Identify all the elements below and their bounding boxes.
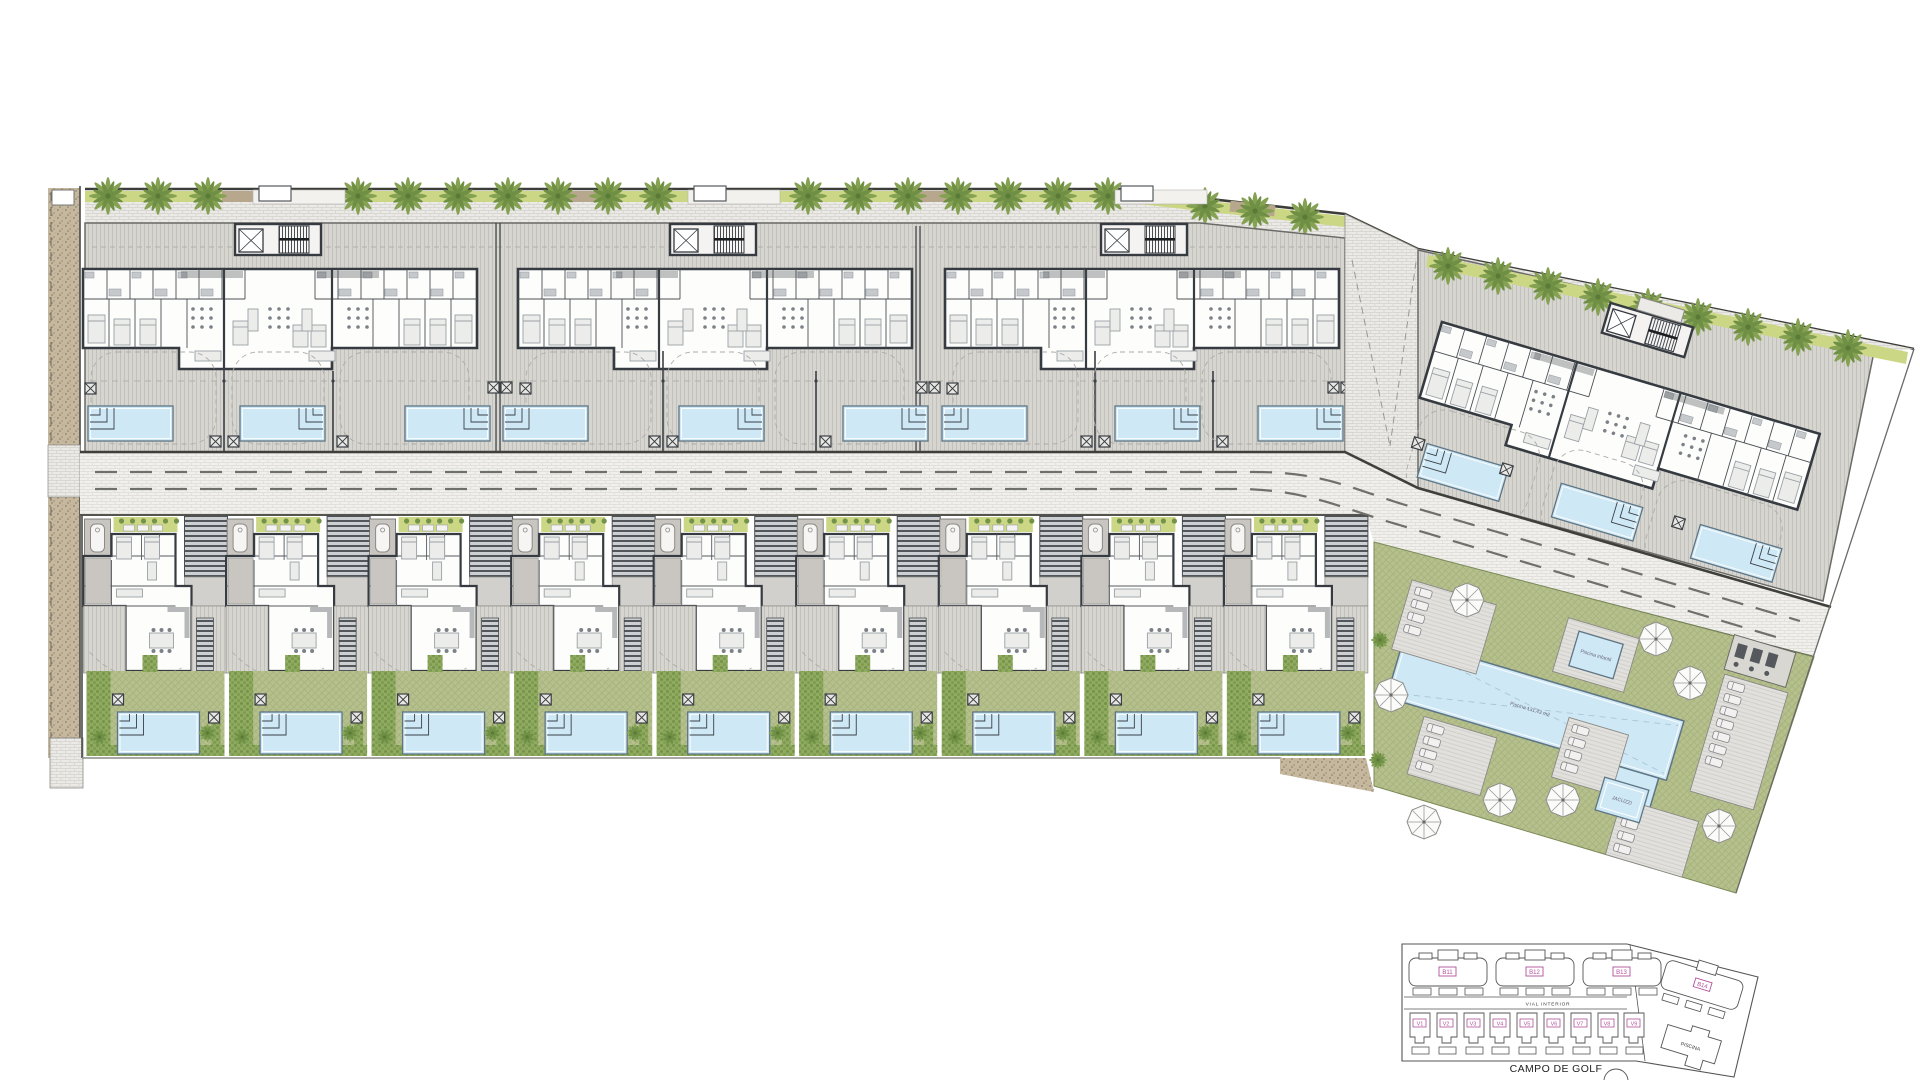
svg-text:V8: V8 [1604, 1022, 1611, 1028]
svg-text:V1: V1 [1417, 1022, 1424, 1028]
svg-text:V3: V3 [1470, 1022, 1477, 1028]
svg-text:B13: B13 [1616, 970, 1627, 976]
svg-text:V9: V9 [1631, 1022, 1638, 1028]
svg-text:VIAL INTERIOR: VIAL INTERIOR [1526, 1002, 1571, 1008]
svg-text:V7: V7 [1577, 1022, 1584, 1028]
svg-text:V5: V5 [1524, 1022, 1531, 1028]
svg-text:CAMPO DE GOLF: CAMPO DE GOLF [1510, 1063, 1603, 1075]
svg-text:V2: V2 [1443, 1022, 1450, 1028]
svg-text:B12: B12 [1529, 970, 1540, 976]
svg-text:B11: B11 [1442, 970, 1453, 976]
svg-text:V4: V4 [1497, 1022, 1504, 1028]
svg-text:V6: V6 [1551, 1022, 1558, 1028]
